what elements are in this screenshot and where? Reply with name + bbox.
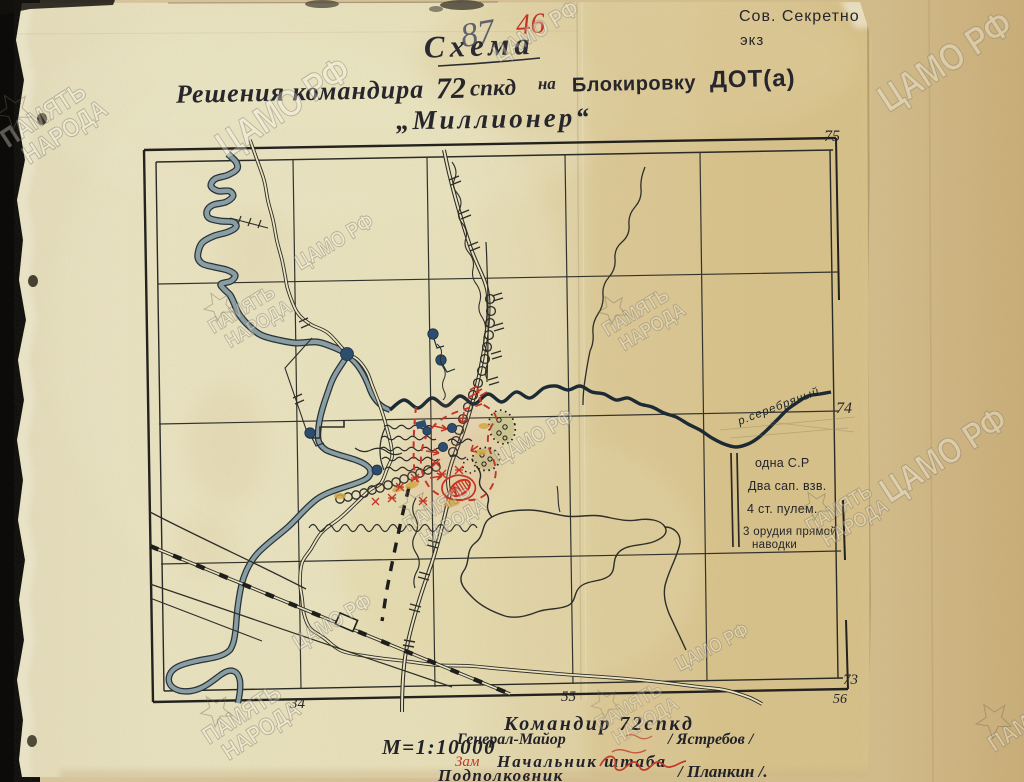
svg-text:спкд: спкд: [470, 75, 517, 101]
svg-text:/ Ястребов /: / Ястребов /: [667, 731, 755, 748]
svg-text:наводки: наводки: [752, 539, 797, 551]
svg-text:на: на: [538, 74, 557, 93]
svg-text:73: 73: [843, 672, 858, 688]
svg-text:Подполковник: Подполковник: [437, 766, 564, 782]
svg-text:экз: экз: [740, 32, 764, 49]
svg-text:74: 74: [836, 400, 852, 417]
svg-text:75: 75: [824, 128, 840, 145]
svg-text:56: 56: [833, 692, 847, 707]
svg-text:Сов. Секретно: Сов. Секретно: [739, 8, 860, 25]
svg-text:Генерал-Майор: Генерал-Майор: [456, 731, 566, 748]
svg-text:„Миллионер“: „Миллионер“: [396, 102, 592, 135]
svg-text:72: 72: [436, 72, 467, 106]
svg-text:Блокировку: Блокировку: [572, 72, 697, 97]
svg-text:Два сап. взв.: Два сап. взв.: [748, 479, 827, 493]
svg-text:одна С.Р: одна С.Р: [755, 456, 810, 470]
svg-text:/ Планкин /.: / Планкин /.: [676, 762, 768, 781]
svg-text:55: 55: [561, 689, 577, 705]
svg-text:ДОТ(а): ДОТ(а): [710, 65, 796, 94]
